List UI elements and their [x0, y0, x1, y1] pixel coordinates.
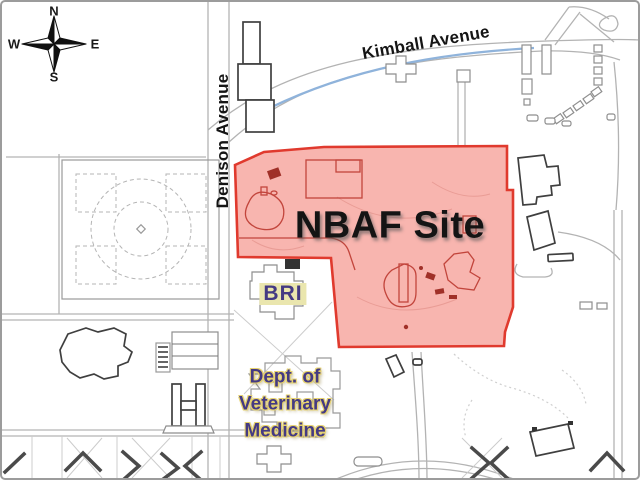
housing-row-lower [527, 114, 615, 126]
striped-annex-hatch [158, 347, 168, 367]
compass-label-west: W [8, 37, 20, 52]
road-kimball-south-line [229, 51, 620, 142]
housing-diagonal-row [553, 87, 602, 124]
garden-circle-inner [114, 202, 168, 256]
road-east-loop [515, 264, 552, 277]
bri-annex-dark [285, 259, 300, 269]
garden-plot-nw [76, 174, 116, 212]
south-tilted-small [386, 355, 404, 377]
dorm-building-4 [524, 99, 530, 105]
southeast-corner-2 [568, 421, 573, 425]
small-building-topcenter [457, 70, 470, 82]
road-to-site [458, 72, 465, 146]
compass-label-east: E [91, 37, 100, 52]
striped-building [172, 332, 218, 369]
garden-circle-outer [91, 179, 191, 279]
north-complex-tower [243, 22, 260, 64]
dorm-building-1 [522, 45, 531, 74]
label-dept-vet-line2: Veterinary [239, 391, 331, 418]
east-small-1 [580, 302, 592, 309]
east-building-large [518, 155, 560, 205]
compass-label-north: N [49, 4, 58, 19]
road-east-vertical [614, 210, 622, 480]
plus-building [386, 56, 416, 82]
southeast-corner-1 [532, 427, 537, 431]
dorm-building-2 [542, 45, 551, 74]
cross-building [257, 446, 291, 472]
south-tiny-bar [413, 359, 422, 365]
label-dept-vet-line1: Dept. of [239, 364, 331, 391]
housing-column [594, 45, 602, 85]
east-building-tilted [527, 211, 555, 250]
east-building-bar [548, 253, 573, 261]
h-building [163, 384, 214, 433]
chevron-apartments [5, 448, 623, 480]
garden-area [62, 160, 219, 299]
north-complex-main [238, 64, 271, 100]
south-oval-building [354, 457, 382, 466]
label-denison-avenue: Denison Avenue [213, 74, 233, 209]
north-complex-south [246, 100, 274, 132]
compass-icon [22, 16, 86, 72]
label-bri: BRI [259, 283, 306, 305]
road-mid-horizontal [2, 314, 234, 320]
southwest-building [60, 328, 132, 379]
label-dept-vet-line3: Medicine [239, 418, 331, 445]
compass-label-south: S [50, 70, 59, 85]
label-nbaf-site: NBAF Site [295, 205, 485, 248]
east-small-2 [597, 303, 607, 309]
dorm-building-3 [522, 79, 532, 94]
garden-outline [62, 160, 219, 299]
road-east-curve [614, 62, 619, 210]
campus-map: N W E S Kimball Avenue Denison Avenue NB… [0, 0, 640, 480]
garden-center [137, 225, 145, 233]
label-dept-vet: Dept. of Veterinary Medicine [239, 364, 331, 445]
